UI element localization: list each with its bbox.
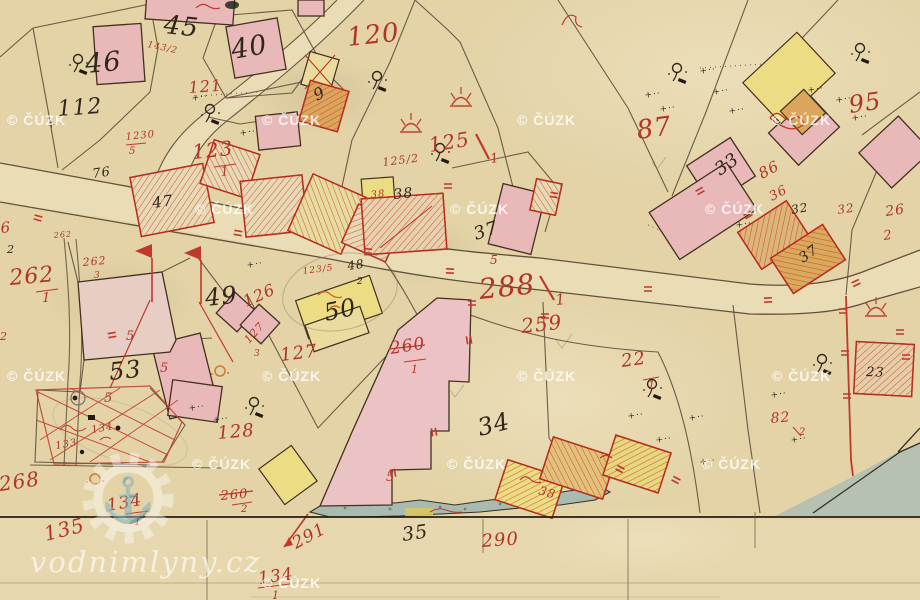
parcel-number-label: 5: [129, 146, 136, 157]
parcel-number-label: 1: [648, 379, 656, 392]
parcel-number-label: 262: [7, 262, 55, 291]
house-number-label: 2: [6, 243, 15, 256]
parcel-number-label: 5: [104, 391, 113, 406]
parcel-number-label: 120: [346, 18, 401, 53]
house-number-label: 46: [83, 46, 123, 80]
parcel-number-label: 262: [52, 229, 72, 240]
parcel-number-label: 5: [490, 253, 499, 267]
cuzk-watermark: © ČÚZK: [262, 111, 321, 128]
parcel-number-label: 1: [42, 291, 51, 306]
cuzk-watermark: © ČÚZK: [192, 455, 251, 472]
house-number-label: 47: [150, 191, 174, 212]
parcel-number-label: 5: [126, 329, 135, 344]
cuzk-watermark: © ČÚZK: [772, 367, 831, 384]
cuzk-watermark: © ČÚZK: [705, 200, 764, 217]
map-viewport[interactable]: 4546401127647938374824950533435333732232…: [0, 0, 920, 600]
house-number-label: 48: [345, 257, 365, 273]
cuzk-watermark: © ČÚZK: [702, 455, 761, 472]
cuzk-watermark: © ČÚZK: [517, 367, 576, 384]
cuzk-watermark: © ČÚZK: [772, 111, 831, 128]
house-number-label: 2: [356, 277, 364, 287]
parcel-number-label: 123: [191, 136, 234, 164]
parcel-number-label: 22: [619, 348, 648, 372]
house-number-label: 49: [203, 281, 239, 312]
building-53: [78, 272, 176, 360]
parcel-number-label: 87: [635, 111, 674, 146]
house-number-label: 38: [393, 185, 414, 203]
parcel-number-label: 6: [0, 218, 12, 237]
cuzk-watermark: © ČÚZK: [262, 367, 321, 384]
house-number-label: 45: [161, 10, 200, 44]
parcel-number-label: 3: [94, 271, 101, 281]
house-number-label: 76: [91, 165, 111, 182]
cuzk-watermark: © ČÚZK: [262, 574, 321, 591]
parcel-number-label: 2: [240, 504, 248, 515]
house-number-label: 35: [401, 521, 430, 546]
parcel-number-label: 262: [81, 254, 107, 269]
house-number-label: 40: [228, 29, 270, 66]
parcel-number-label: 26: [883, 201, 906, 220]
house-number-label: 32: [790, 200, 809, 217]
parcel-number-label: 2: [0, 330, 8, 343]
cuzk-watermark: © ČÚZK: [195, 200, 254, 217]
parcel-number-label: 288: [476, 267, 537, 306]
parcel-number-label: 290: [480, 528, 520, 552]
cuzk-watermark: © ČÚZK: [450, 200, 509, 217]
site-watermark-text: vodnimlyny.cz: [30, 545, 261, 579]
parcel-number-label: 2: [881, 228, 893, 244]
parcel-number-label: 1: [411, 363, 419, 376]
parcel-number-label: 1: [555, 290, 567, 309]
cuzk-watermark: © ČÚZK: [7, 111, 66, 128]
house-number-label: 53: [108, 355, 143, 386]
house-number-label: 23: [865, 365, 885, 381]
parcel-number-label: 82: [770, 409, 791, 427]
cuzk-watermark: © ČÚZK: [7, 367, 66, 384]
cuzk-watermark: © ČÚZK: [447, 455, 506, 472]
cadastral-map-canvas: 4546401127647938374824950533435333732232…: [0, 0, 920, 600]
ink-blob: [225, 1, 239, 9]
parcel-number-label: 5: [160, 361, 169, 376]
parcel-number-label: 32: [836, 201, 855, 217]
parcel-number-label: 260: [219, 487, 249, 504]
anchor-icon: ⚓: [101, 475, 156, 526]
cuzk-watermark: © ČÚZK: [517, 111, 576, 128]
parcel-number-label: 3: [254, 349, 261, 359]
parcel-number-label: 38: [370, 189, 386, 201]
parcel-number-label: 1: [220, 164, 231, 180]
